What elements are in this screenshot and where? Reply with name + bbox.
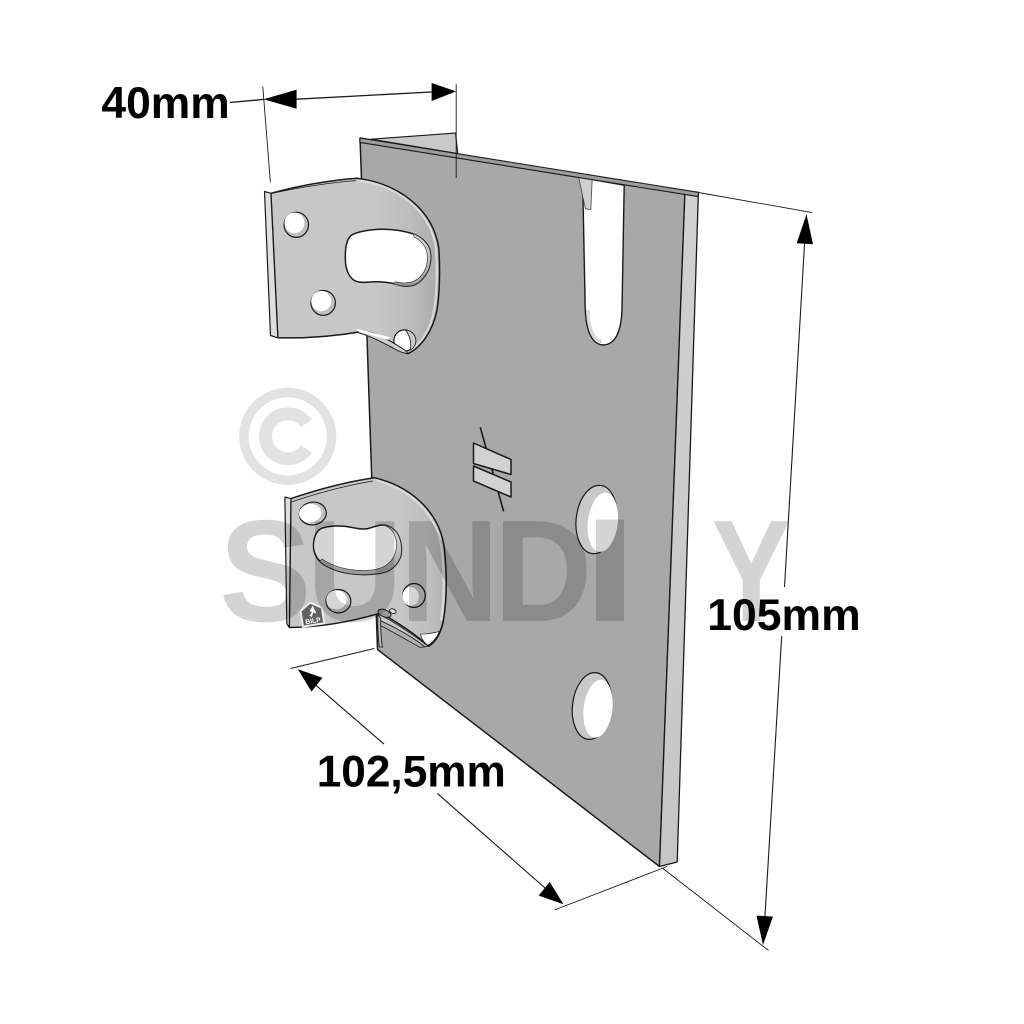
svg-text:105mm: 105mm (707, 591, 860, 640)
svg-text:102,5mm: 102,5mm (317, 748, 506, 797)
svg-text:U: U (307, 491, 402, 652)
svg-text:N: N (400, 490, 499, 652)
svg-text:40mm: 40mm (101, 79, 229, 128)
svg-text:S: S (219, 490, 311, 652)
svg-text:D: D (494, 490, 592, 652)
